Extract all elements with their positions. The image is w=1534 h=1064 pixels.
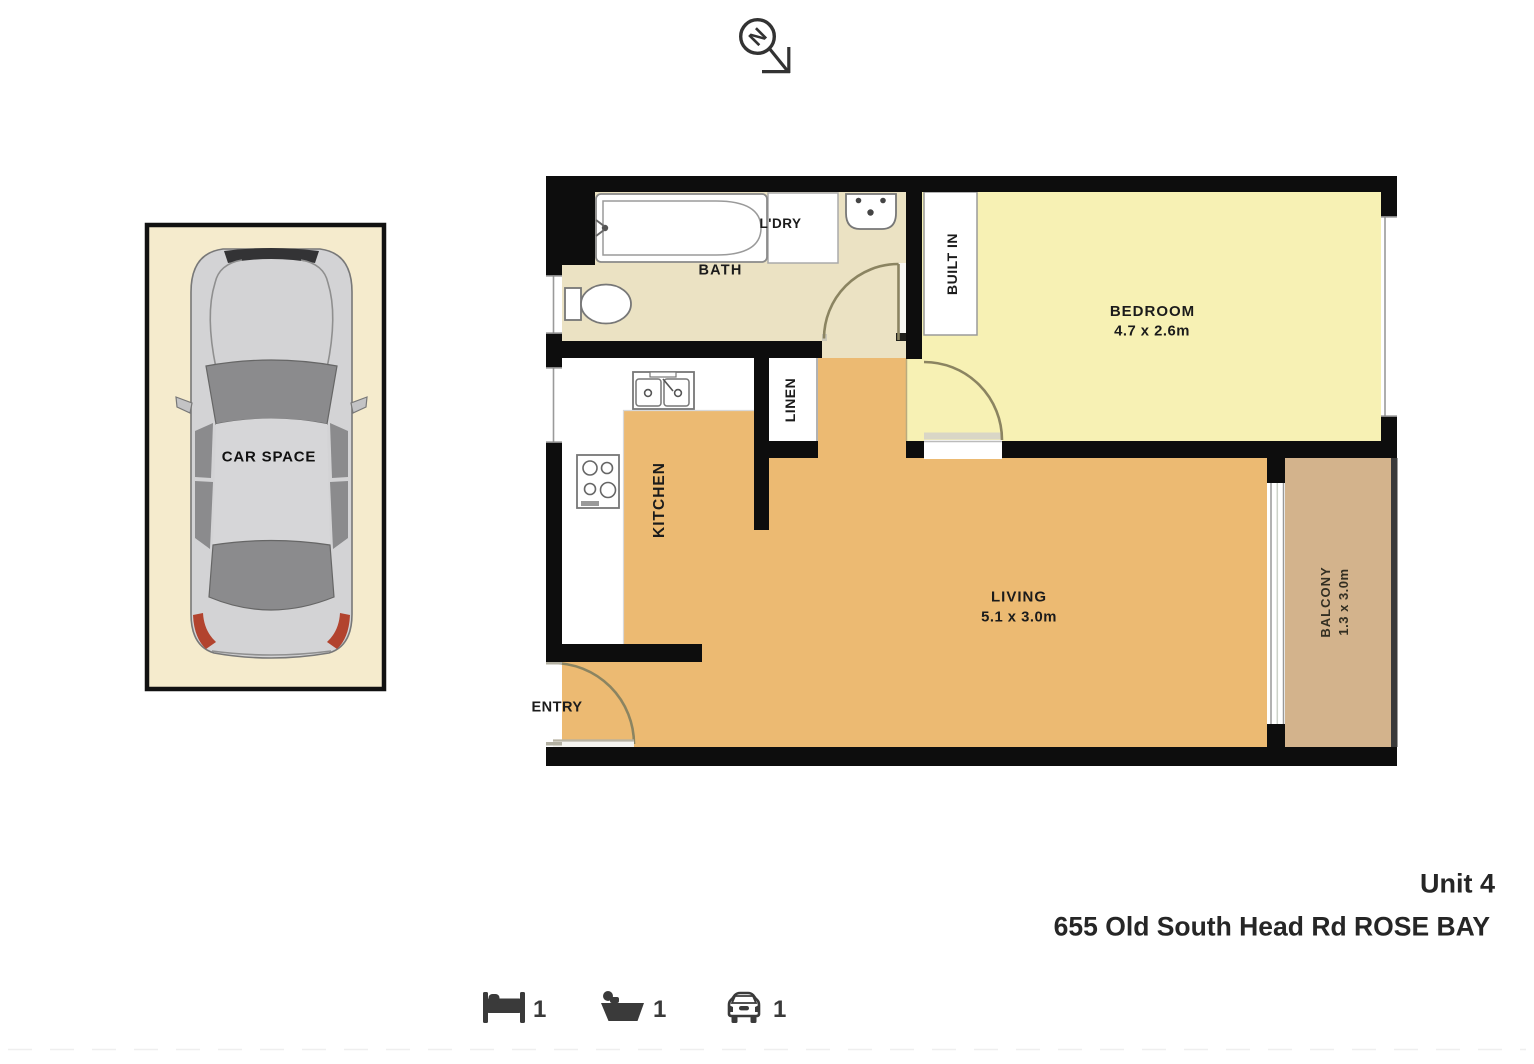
svg-text:655 Old South Head Rd ROSE BAY: 655 Old South Head Rd ROSE BAY bbox=[1054, 912, 1491, 942]
svg-text:LINEN: LINEN bbox=[782, 378, 798, 423]
svg-text:LIVING: LIVING bbox=[991, 589, 1047, 606]
svg-text:CAR SPACE: CAR SPACE bbox=[222, 449, 316, 466]
svg-text:1: 1 bbox=[533, 996, 546, 1023]
svg-text:BATH: BATH bbox=[699, 263, 743, 279]
svg-text:1.3 x 3.0m: 1.3 x 3.0m bbox=[1336, 568, 1351, 635]
svg-text:Unit 4: Unit 4 bbox=[1420, 869, 1495, 899]
svg-text:1: 1 bbox=[653, 996, 666, 1023]
svg-text:L'DRY: L'DRY bbox=[760, 216, 802, 231]
svg-text:4.7 x 2.6m: 4.7 x 2.6m bbox=[1114, 324, 1190, 340]
svg-text:N: N bbox=[744, 23, 771, 50]
svg-text:KITCHEN: KITCHEN bbox=[651, 462, 668, 538]
svg-text:ENTRY: ENTRY bbox=[531, 700, 582, 716]
svg-text:5.1 x 3.0m: 5.1 x 3.0m bbox=[981, 610, 1057, 626]
svg-text:BEDROOM: BEDROOM bbox=[1110, 303, 1195, 320]
svg-text:1: 1 bbox=[773, 996, 786, 1023]
svg-text:BALCONY: BALCONY bbox=[1318, 566, 1333, 637]
svg-text:BUILT IN: BUILT IN bbox=[944, 233, 960, 295]
